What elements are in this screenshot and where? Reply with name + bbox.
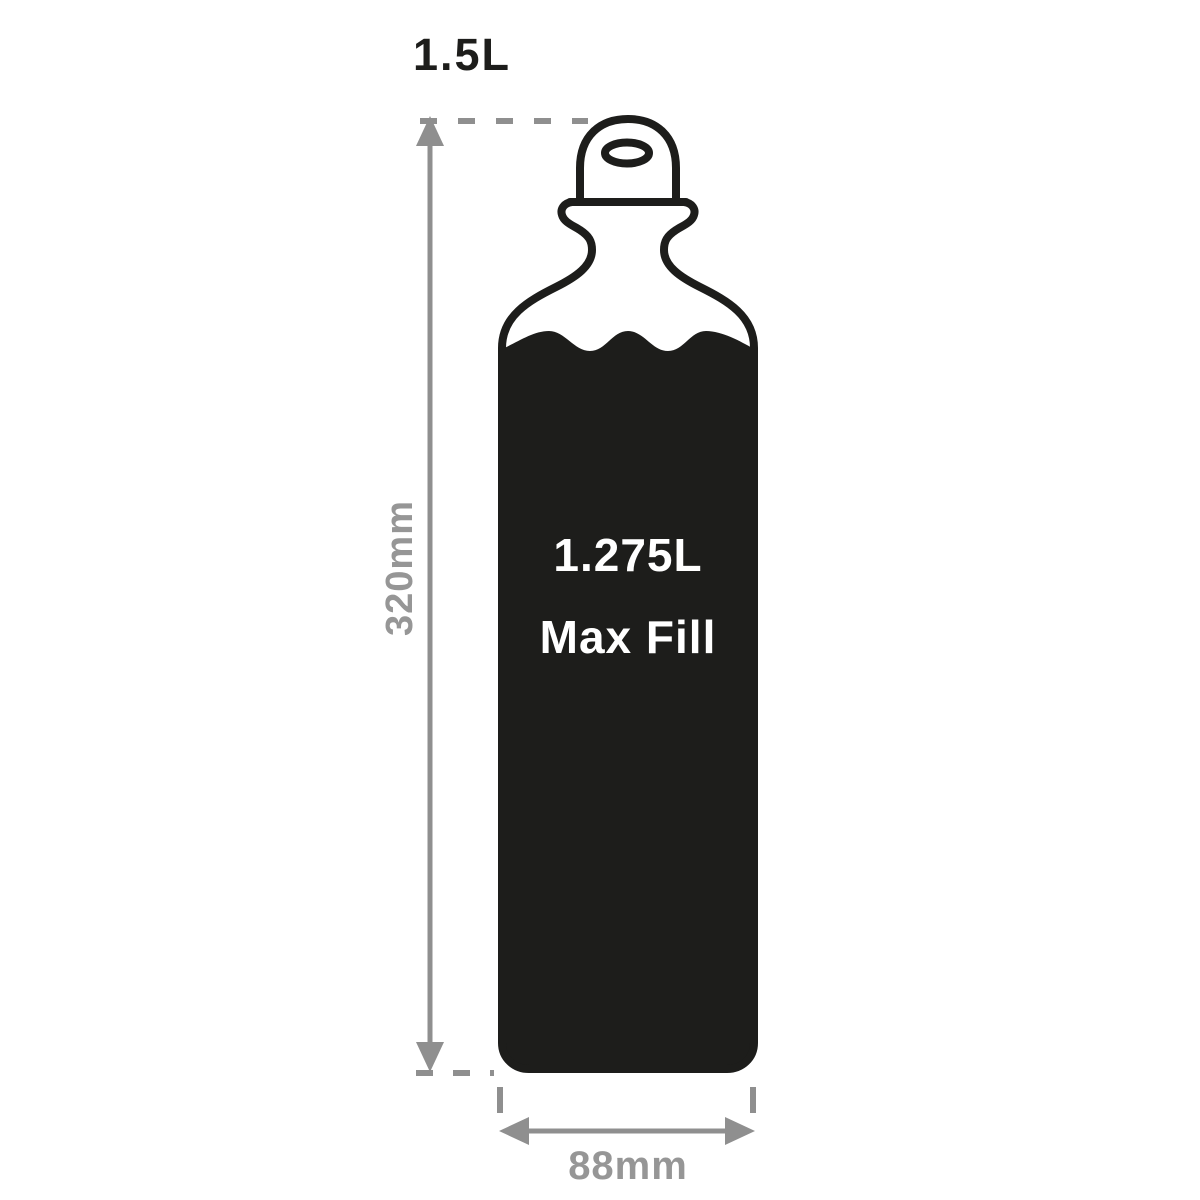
height-dimension-label: 320mm [381,500,419,636]
width-arrowhead-right-icon [725,1117,755,1145]
max-fill-volume-label: 1.275L [553,532,702,578]
capacity-title: 1.5L [413,32,511,77]
bottle-dimension-diagram: 1.5L 320mm 1.275L Max Fill 88mm [0,0,1200,1200]
height-arrowhead-bottom-icon [416,1042,444,1072]
bottle-diagram-graphics [0,0,1200,1200]
water-fill [502,331,754,1069]
max-fill-text-label: Max Fill [540,614,717,660]
width-dimension-label: 88mm [568,1146,688,1186]
cap-hole-outline [605,143,649,164]
width-arrowhead-left-icon [499,1117,529,1145]
